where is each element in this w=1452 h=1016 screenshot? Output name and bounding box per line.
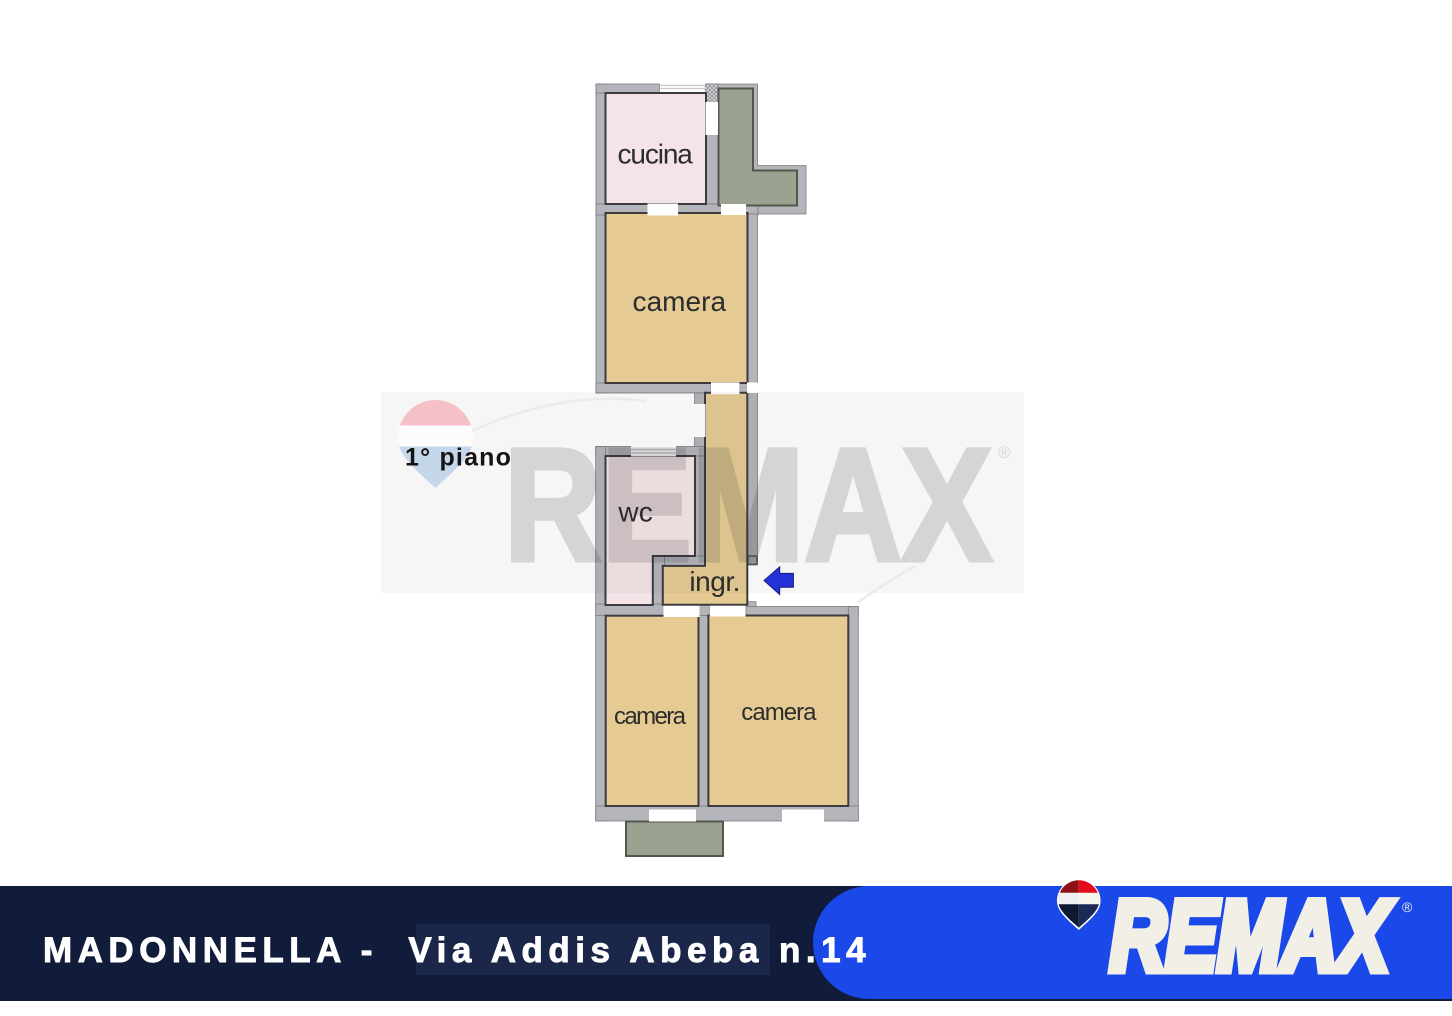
svg-text:®: ®: [1402, 899, 1413, 915]
svg-text:REMAX: REMAX: [1110, 880, 1393, 991]
svg-text:camera: camera: [633, 286, 727, 317]
svg-text:camera: camera: [741, 699, 817, 726]
svg-text:1° piano: 1° piano: [405, 444, 512, 472]
svg-text:®: ®: [998, 443, 1011, 462]
svg-text:REMAX: REMAX: [504, 415, 992, 594]
svg-text:ingr.: ingr.: [689, 566, 740, 597]
svg-text:cucina: cucina: [618, 139, 694, 170]
svg-text:camera: camera: [614, 703, 687, 730]
svg-text:wc: wc: [617, 497, 652, 528]
